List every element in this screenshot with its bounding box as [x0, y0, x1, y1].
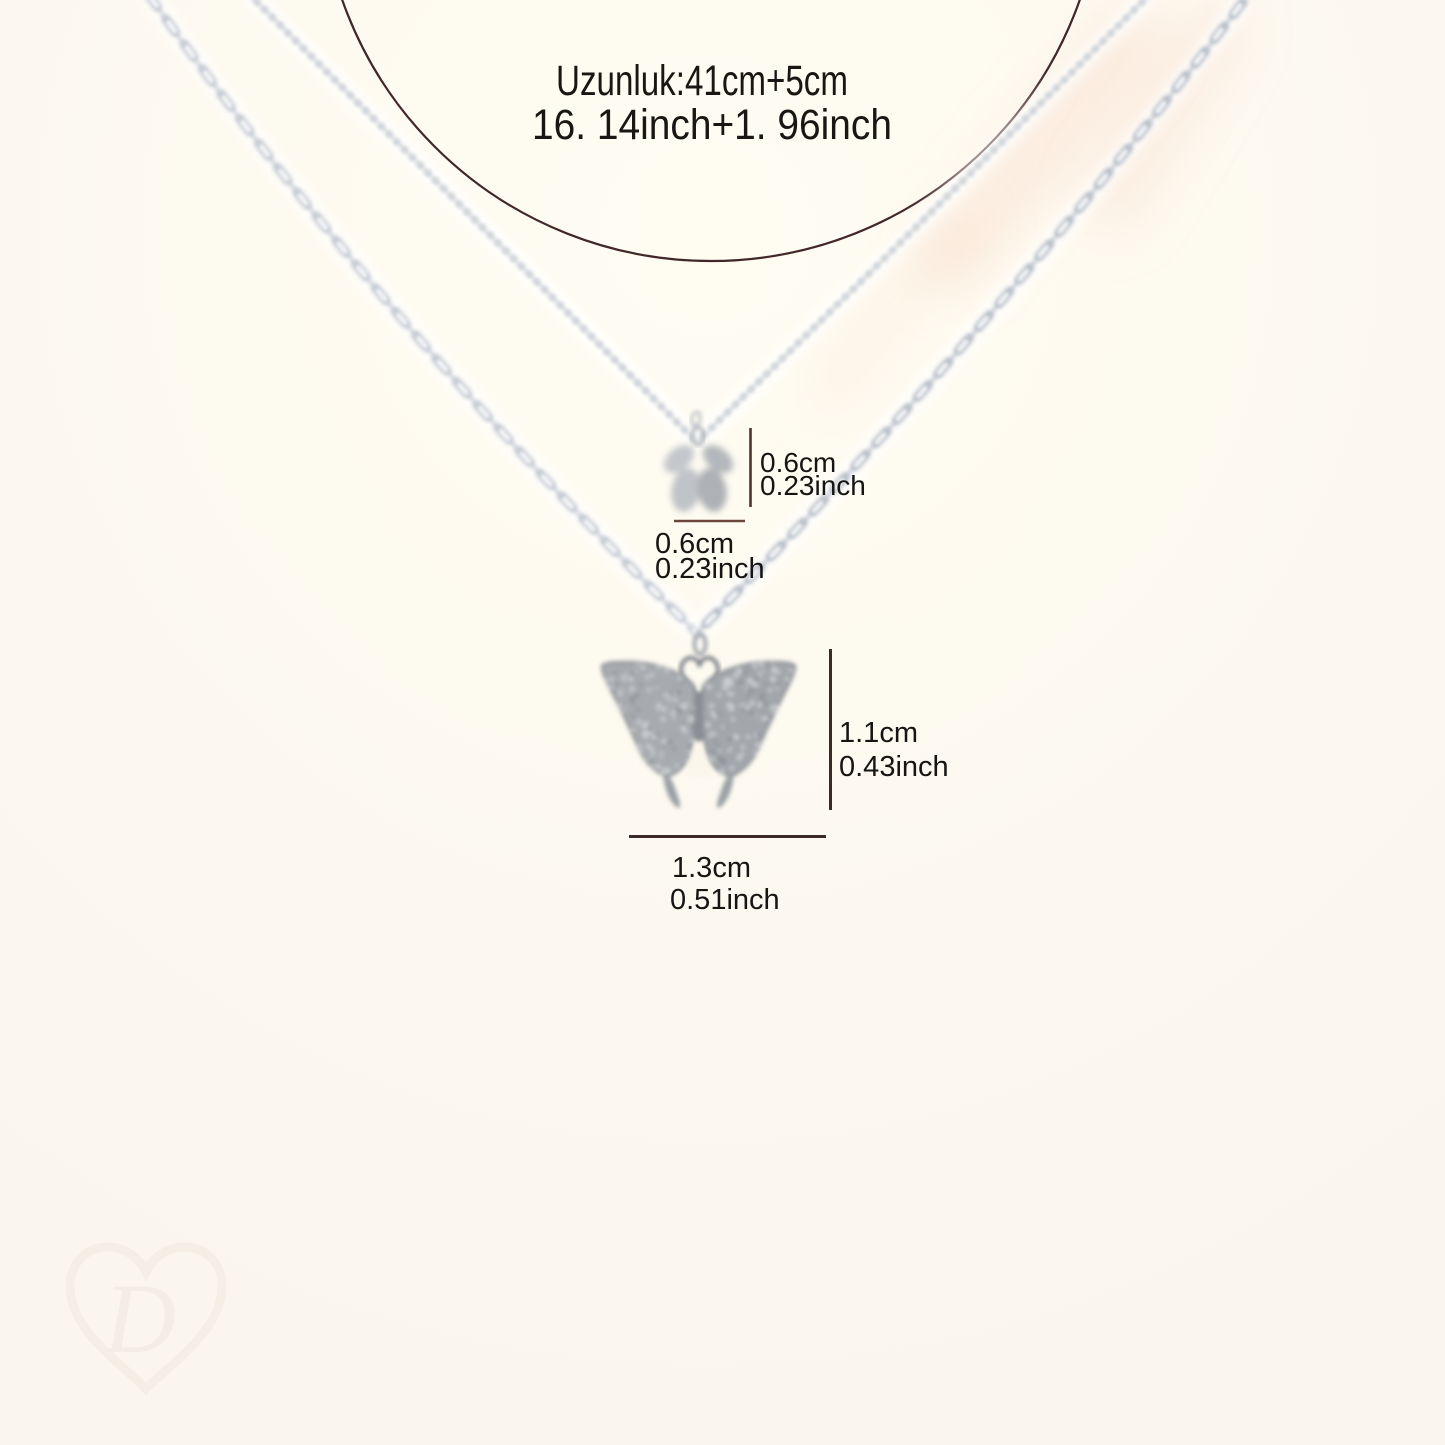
svg-text:0.23inch: 0.23inch — [655, 553, 765, 585]
svg-text:0.51inch: 0.51inch — [670, 884, 780, 916]
svg-text:16. 14inch+1. 96inch: 16. 14inch+1. 96inch — [532, 101, 892, 149]
svg-text:1.1cm: 1.1cm — [839, 717, 918, 749]
svg-text:0.43inch: 0.43inch — [839, 751, 949, 783]
svg-text:1.3cm: 1.3cm — [672, 852, 751, 884]
svg-text:D: D — [102, 1263, 176, 1374]
svg-text:0.23inch: 0.23inch — [760, 470, 866, 501]
svg-text:Uzunluk:41cm+5cm: Uzunluk:41cm+5cm — [556, 57, 848, 105]
